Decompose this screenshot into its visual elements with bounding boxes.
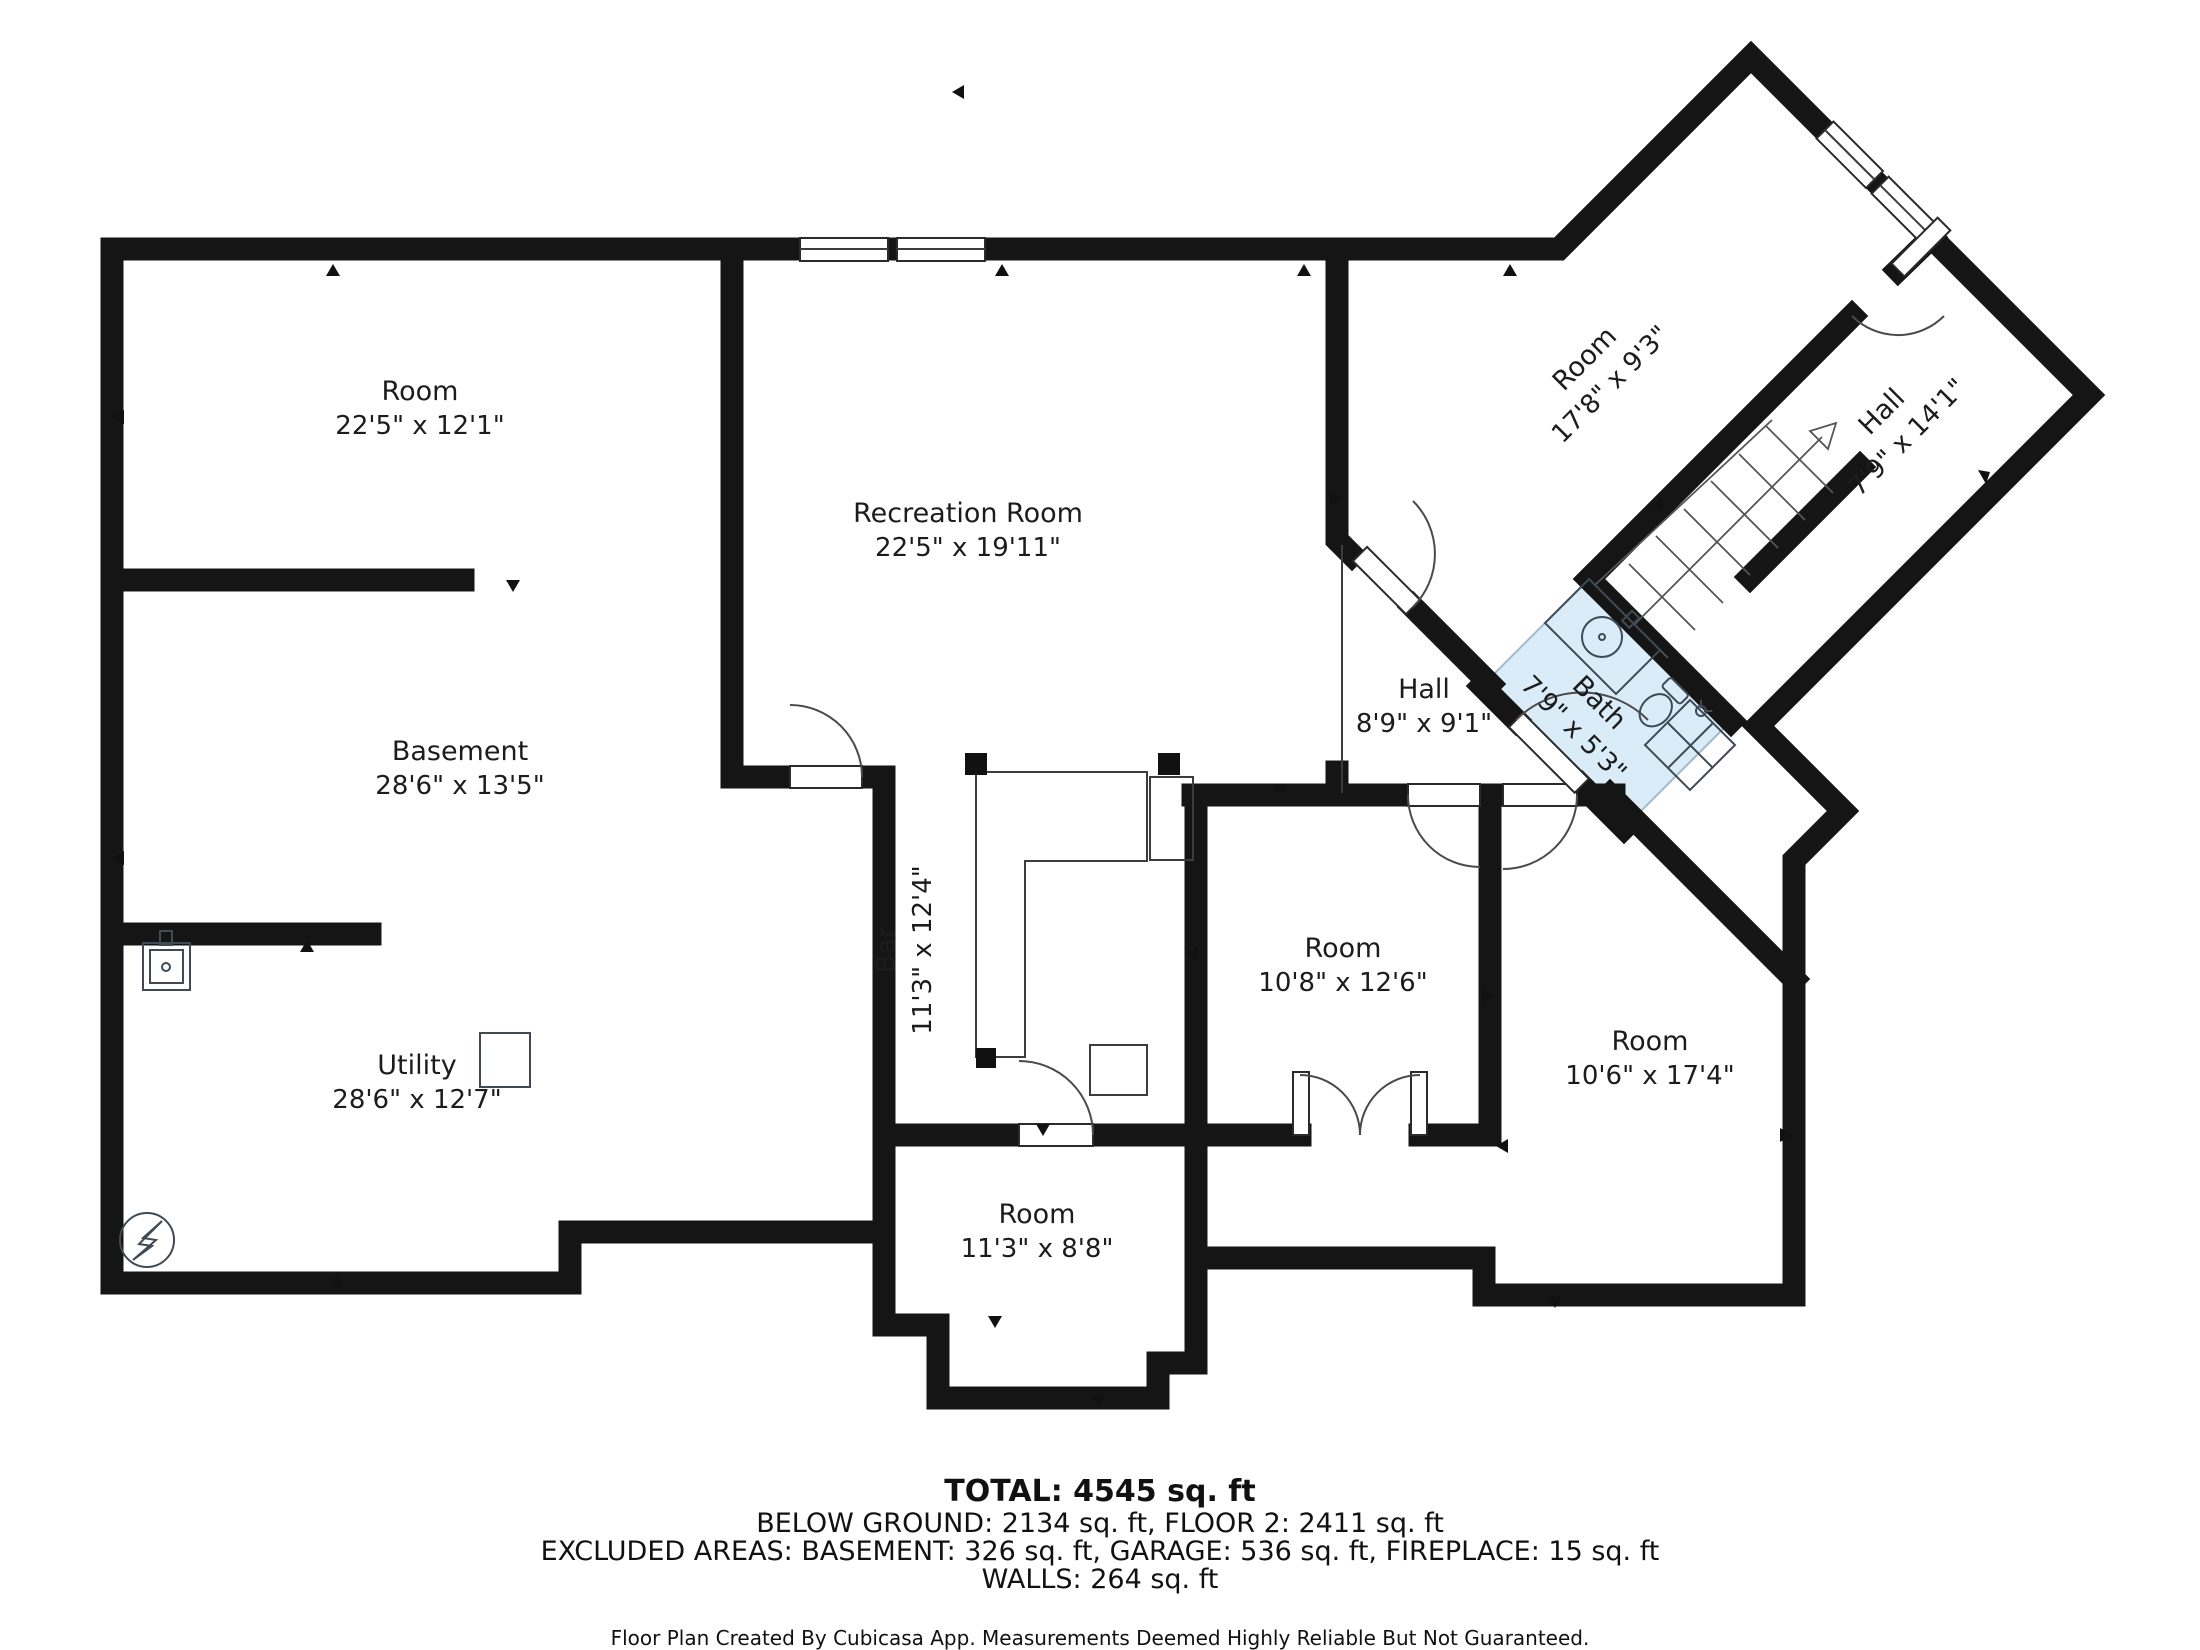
door-bar-room (1019, 1061, 1093, 1146)
room-dims: 8'9" x 9'1" (1356, 709, 1492, 739)
room-label-recreation: Recreation Room 22'5" x 19'11" (853, 498, 1083, 563)
summary-below-ground: BELOW GROUND: 2134 sq. ft, FLOOR 2: 2411… (0, 1508, 2200, 1539)
room-label-wing-room: Room 17'8" x 9'3" (1520, 294, 1675, 449)
water-heater-icon (480, 1033, 530, 1087)
door-nook-room106 (1503, 784, 1577, 869)
floor-plan-canvas: Room 22'5" x 12'1" Recreation Room 22'5"… (0, 0, 2200, 1650)
interior-wall-stair-side (1750, 467, 1860, 577)
room-dims: 10'6" x 17'4" (1565, 1061, 1734, 1091)
summary-excluded: EXCLUDED AREAS: BASEMENT: 326 sq. ft, GA… (0, 1536, 2200, 1567)
room-label-bottom-center: Room 11'3" x 8'8" (961, 1199, 1114, 1264)
room-dims: 10'8" x 12'6" (1258, 968, 1427, 998)
room-dims: 11'3" x 8'8" (961, 1234, 1114, 1264)
bar-post (965, 753, 987, 775)
door-hall-wingroom (1353, 501, 1435, 614)
bar-post (976, 1048, 996, 1068)
bar-post (1158, 753, 1180, 775)
interior-wall-hall-wingroom (1413, 607, 1490, 684)
room-dims: 7'9" x 14'1" (1843, 373, 1972, 502)
door-basement-rec (790, 705, 862, 788)
room-dims: 28'6" x 13'5" (375, 771, 544, 801)
room-dims: 22'5" x 19'11" (875, 533, 1061, 563)
room-name: Room (382, 376, 459, 407)
room-name: Basement (392, 736, 528, 767)
room-label-108: Room 10'8" x 12'6" (1258, 933, 1427, 998)
door-hall-room108 (1408, 784, 1480, 867)
room-name: Recreation Room (853, 498, 1083, 529)
interior-wall-rec-wing (1337, 249, 1352, 555)
summary-walls: WALLS: 264 sq. ft (0, 1564, 2200, 1595)
room-label-top-left: Room 22'5" x 12'1" (335, 376, 504, 441)
room-label-utility: Utility 28'6" x 12'7" (332, 1050, 501, 1115)
outer-walls (112, 57, 2089, 1398)
room-name: Utility (377, 1050, 456, 1081)
double-door-room108 (1293, 1072, 1427, 1135)
disclaimer: Floor Plan Created By Cubicasa App. Meas… (0, 1626, 2200, 1650)
room-dims: 11'3" x 12'4" (908, 865, 938, 1034)
room-name: Bar (871, 926, 902, 973)
interior-wall-rec-left (732, 249, 790, 777)
room-name: Room (1305, 933, 1382, 964)
bar-counter (965, 753, 1193, 1095)
room-name: Room (1612, 1026, 1689, 1057)
room-name: Room (999, 1199, 1076, 1230)
room-label-106: Room 10'6" x 17'4" (1565, 1026, 1734, 1091)
room-dims: 28'6" x 12'7" (332, 1085, 501, 1115)
room-name: Hall (1398, 674, 1450, 705)
summary-total: TOTAL: 4545 sq. ft (0, 1474, 2200, 1509)
room-dims: 22'5" x 12'1" (335, 411, 504, 441)
interior-wall-room106-diagonal (1610, 795, 1794, 979)
room-label-basement: Basement 28'6" x 13'5" (375, 736, 544, 801)
electrical-panel-icon (120, 1213, 174, 1267)
